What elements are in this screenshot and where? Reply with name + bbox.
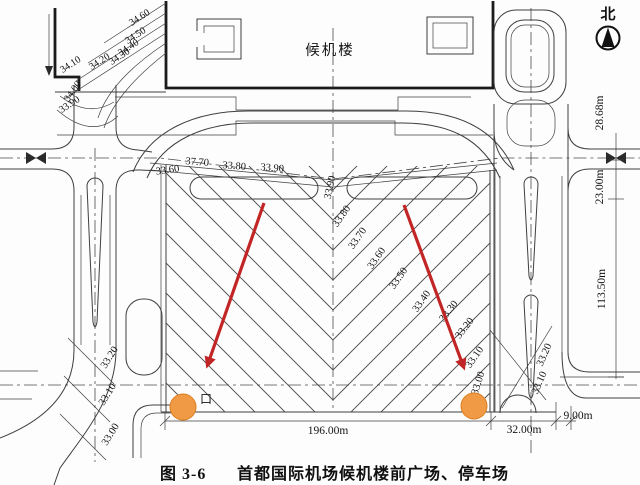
site-plan-drawing: 候机楼 34.60 34.50 34.40 34.30 34.20 34.10 … (0, 0, 640, 485)
red-arrow-east (404, 205, 461, 360)
road-crossing-marker-east (606, 152, 616, 164)
east-road: 33.20 33.10 (490, 10, 640, 413)
terminal-west-wing-outline (55, 8, 79, 91)
island-east (347, 177, 477, 199)
plaza-parking-hatch (166, 23, 490, 485)
entrance-marker-east (461, 393, 487, 419)
contour-fan-upper-left: 34.60 34.50 34.40 34.30 34.20 34.10 34.0… (45, 3, 166, 128)
flow-direction-arrow (45, 66, 53, 76)
contour-label: 33.80 (222, 160, 246, 173)
west-road: 33.20 33.10 33.00 (0, 85, 171, 485)
figure-caption: 图 3-6 首都国际机场候机楼前广场、停车场 (160, 464, 509, 483)
north-indicator: 北 (597, 6, 620, 50)
road-crossing-marker-west (26, 152, 36, 164)
contour-label: 33.10 (464, 345, 487, 371)
slope-arrows (205, 203, 465, 369)
contour-label: 33.90 (323, 175, 339, 200)
contour-label: 33.40 (411, 289, 434, 315)
terminal-apron (57, 97, 514, 178)
contour-label: 37.70 (185, 156, 209, 169)
contour-label: 33.20 (535, 342, 555, 368)
contour-label: 34.10 (58, 54, 83, 75)
east-loop-island-inner (511, 25, 549, 87)
contour-label: 33.90 (57, 94, 82, 115)
dimension-label: 32.00m (507, 424, 542, 436)
red-arrow-west (210, 203, 264, 358)
east-loop-outer (494, 10, 566, 104)
dimension-label: 28.68m (594, 96, 606, 131)
dimension-label: 23.00m (594, 170, 606, 205)
contour-label: 33.00 (470, 370, 488, 396)
dimension-label: 196.00m (308, 425, 349, 437)
entrance-label: 口 (200, 392, 212, 406)
figure-3-6-site-plan: 候机楼 34.60 34.50 34.40 34.30 34.20 34.10 … (0, 0, 640, 485)
main-road-axis (0, 158, 640, 179)
contour-label: 33.00 (100, 422, 122, 448)
dimension-label: 113.50m (596, 269, 608, 309)
courtyard-right-outer (427, 17, 473, 54)
contour-label: 34.20 (87, 51, 112, 72)
contour-label: 33.50 (388, 266, 411, 292)
contour-label: 33.20 (99, 345, 121, 371)
entrance-marker-west (170, 394, 196, 420)
island-west (190, 177, 318, 199)
dimension-bottom: 196.00m 32.00m 9.00m (160, 402, 593, 437)
contour-label: 33.10 (97, 382, 119, 408)
courtyard-left-outer (197, 19, 241, 59)
caption-number: 图 3-6 (160, 465, 206, 483)
centerline-axes (0, 8, 640, 462)
entrance-markers: 口 (170, 392, 487, 420)
courtyard-right-inner (433, 23, 467, 48)
contour-label: 33.10 (530, 370, 550, 396)
contour-label: 33.90 (260, 162, 284, 175)
caption-title: 首都国际机场候机楼前广场、停车场 (237, 464, 509, 483)
contour-label: 33.80 (331, 204, 354, 230)
west-loop-island (126, 299, 162, 375)
contour-label: 34.60 (127, 7, 152, 28)
dimension-label: 9.00m (563, 410, 592, 422)
access-road-inner-curve (147, 123, 500, 178)
north-label: 北 (600, 6, 615, 23)
apron-step-upper (115, 97, 471, 110)
courtyard-left-inner (204, 26, 234, 52)
terminal-label: 候机楼 (305, 42, 355, 59)
